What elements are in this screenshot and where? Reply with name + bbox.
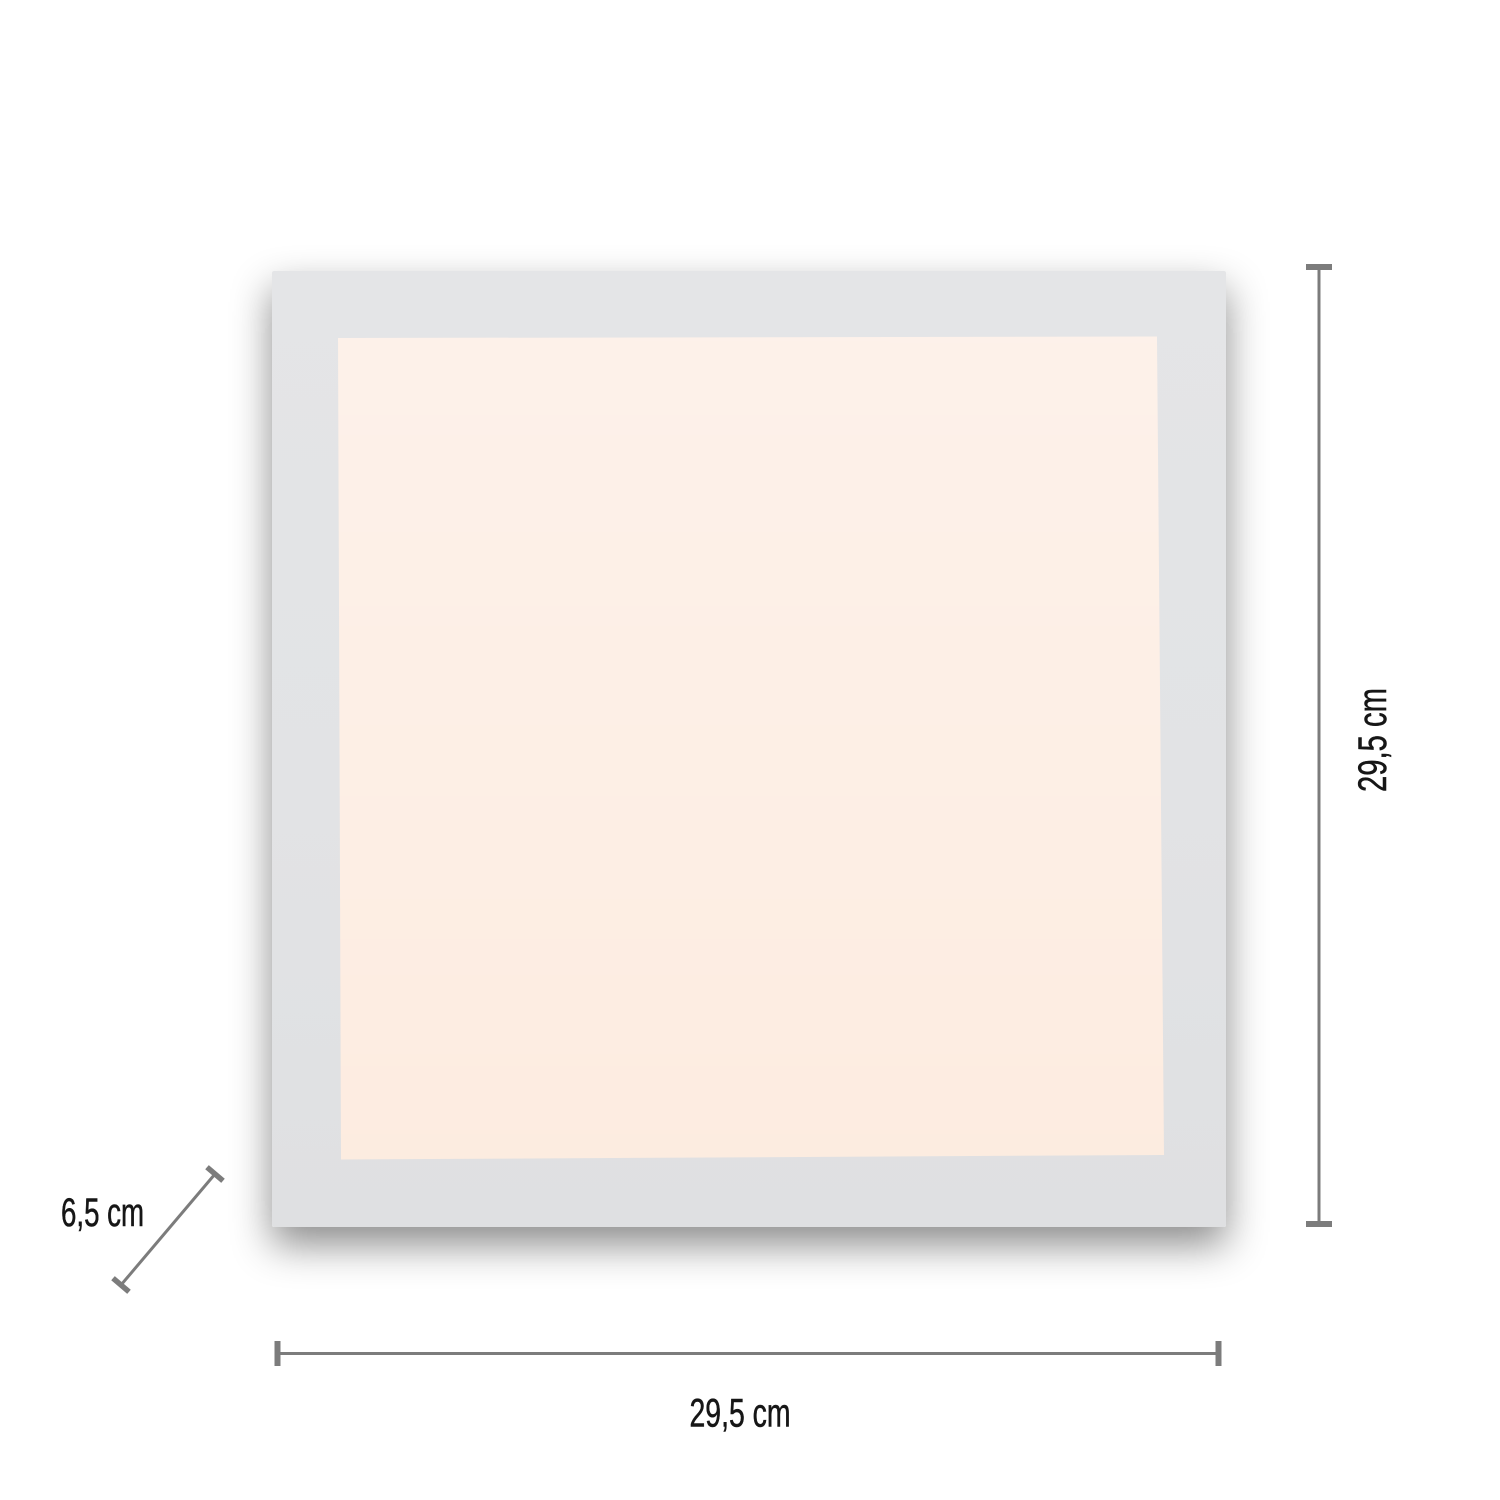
svg-text:29,5 cm: 29,5 cm <box>690 1392 791 1436</box>
svg-text:6,5 cm: 6,5 cm <box>61 1191 144 1235</box>
svg-text:29,5 cm: 29,5 cm <box>1351 688 1395 792</box>
